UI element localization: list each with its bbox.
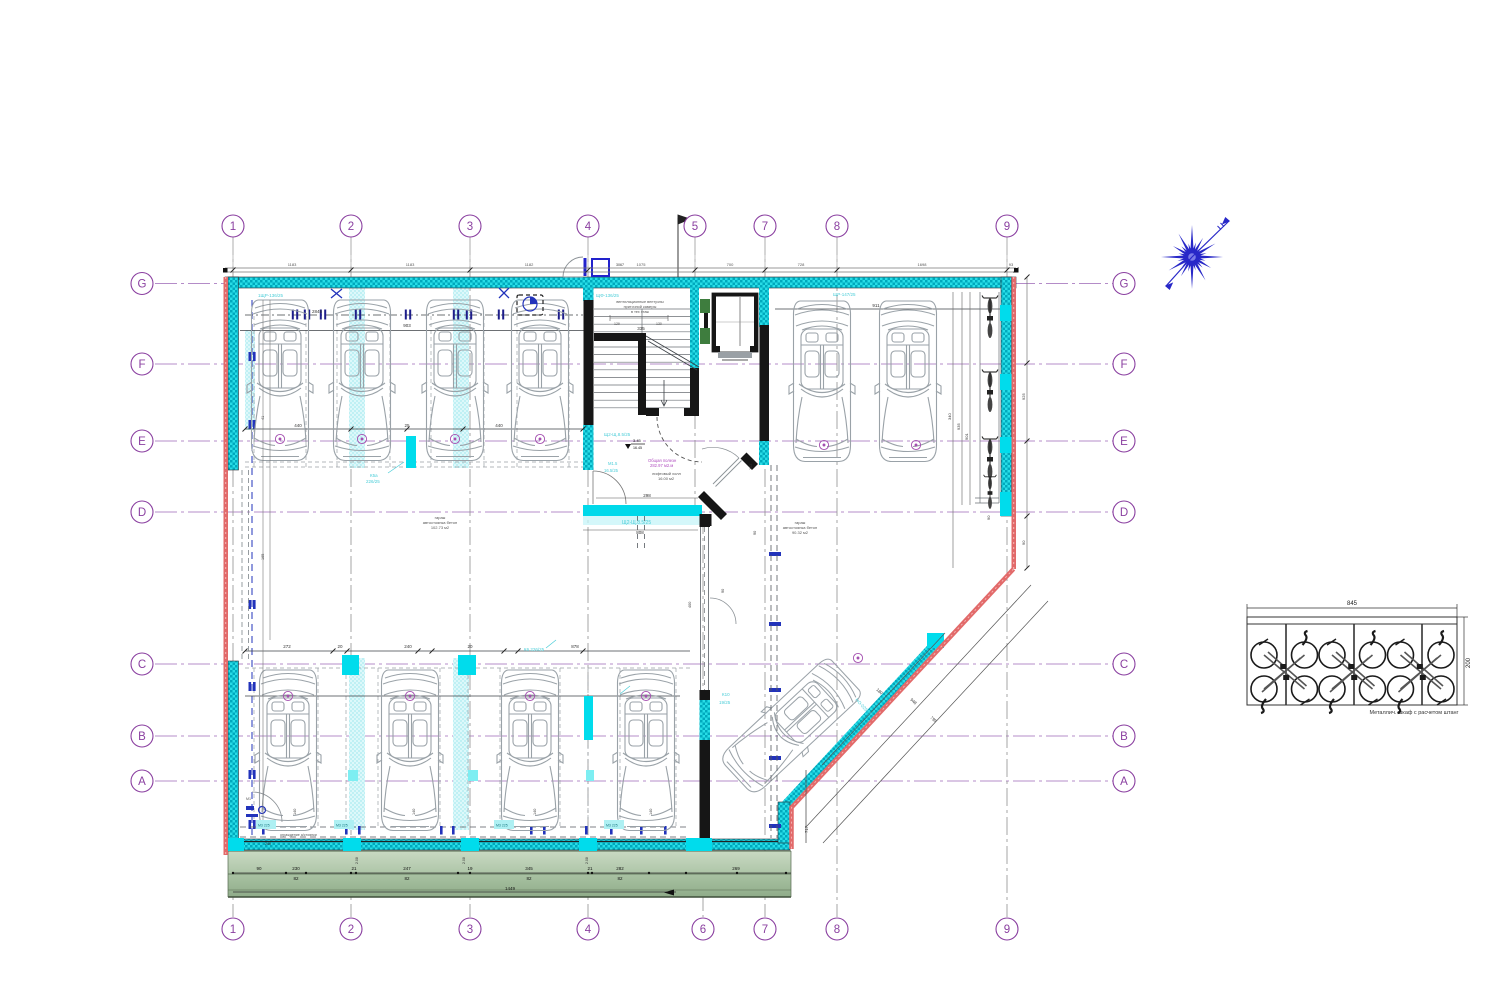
svg-text:B: B	[138, 731, 146, 743]
svg-text:М1: М1	[246, 797, 251, 801]
svg-text:1698: 1698	[918, 262, 928, 267]
svg-text:230: 230	[292, 866, 300, 871]
svg-text:935: 935	[956, 423, 961, 430]
svg-text:4: 4	[585, 221, 592, 233]
svg-text:G: G	[1120, 279, 1129, 291]
svg-text:808: 808	[636, 530, 644, 535]
svg-text:903: 903	[403, 323, 411, 328]
svg-text:298: 298	[643, 493, 651, 498]
svg-text:М1.5: М1.5	[608, 461, 618, 466]
svg-text:102: 102	[749, 464, 753, 470]
svg-text:82: 82	[404, 876, 410, 881]
svg-text:90: 90	[256, 866, 262, 871]
svg-text:вентиляционные вентузлы: вентиляционные вентузлы	[616, 300, 664, 304]
svg-text:345: 345	[525, 866, 533, 871]
svg-text:1ЩР-136/25: 1ЩР-136/25	[258, 293, 283, 298]
svg-text:E: E	[1120, 436, 1128, 448]
svg-text:2.08: 2.08	[585, 857, 589, 864]
svg-text:К10: К10	[722, 692, 730, 697]
svg-text:Щ2-Щ.8.5/25: Щ2-Щ.8.5/25	[604, 432, 631, 437]
svg-text:приточной камеры: приточной камеры	[624, 305, 657, 309]
svg-text:6: 6	[700, 924, 706, 936]
svg-text:М3 225: М3 225	[606, 824, 618, 828]
svg-text:М3 225: М3 225	[496, 824, 508, 828]
svg-text:D: D	[1120, 507, 1128, 519]
svg-text:F: F	[138, 359, 145, 371]
svg-text:102.73 м2: 102.73 м2	[431, 525, 450, 530]
svg-text:М3 225: М3 225	[336, 824, 348, 828]
svg-text:3: 3	[467, 924, 473, 936]
svg-text:90.32 м2: 90.32 м2	[792, 530, 809, 535]
svg-text:400: 400	[688, 602, 692, 608]
svg-text:1: 1	[230, 221, 236, 233]
svg-text:5: 5	[692, 221, 698, 233]
svg-text:129: 129	[614, 322, 620, 326]
svg-text:440: 440	[294, 423, 302, 428]
svg-text:Щ2-Щ.8.5/25: Щ2-Щ.8.5/25	[622, 520, 651, 526]
svg-text:3.45: 3.45	[633, 438, 642, 443]
svg-text:2845: 2845	[312, 309, 323, 314]
svg-text:282.97 м2.м: 282.97 м2.м	[650, 463, 673, 468]
svg-text:925: 925	[1021, 393, 1026, 400]
svg-text:249: 249	[265, 842, 271, 846]
svg-text:D: D	[138, 507, 146, 519]
svg-text:9: 9	[1004, 221, 1010, 233]
svg-text:E: E	[138, 436, 146, 448]
svg-text:140: 140	[533, 809, 537, 815]
svg-text:140: 140	[412, 809, 416, 815]
svg-text:240: 240	[404, 644, 412, 649]
svg-text:878: 878	[571, 644, 579, 649]
svg-text:A: A	[1120, 776, 1128, 788]
svg-text:М3 225: М3 225	[258, 824, 270, 828]
svg-text:8: 8	[834, 221, 840, 233]
svg-text:7: 7	[762, 221, 768, 233]
svg-text:9: 9	[1004, 924, 1010, 936]
svg-text:16.45: 16.45	[633, 446, 642, 450]
svg-text:1075: 1075	[637, 262, 647, 267]
svg-text:4: 4	[585, 924, 592, 936]
svg-text:19: 19	[467, 866, 473, 871]
svg-text:911: 911	[872, 303, 880, 308]
svg-text:845: 845	[1347, 601, 1358, 607]
svg-text:90: 90	[1021, 540, 1026, 545]
svg-text:2.08: 2.08	[462, 857, 466, 864]
svg-text:130: 130	[656, 322, 662, 326]
svg-text:20: 20	[467, 644, 473, 649]
svg-text:3067: 3067	[616, 263, 624, 267]
svg-text:93: 93	[1009, 262, 1014, 267]
svg-text:ЩР-147/25: ЩР-147/25	[833, 292, 856, 297]
svg-text:ЩФ-136/25: ЩФ-136/25	[596, 293, 619, 298]
svg-text:1182: 1182	[525, 262, 534, 267]
svg-text:82: 82	[617, 876, 623, 881]
svg-text:1183: 1183	[288, 262, 297, 267]
svg-text:2: 2	[348, 924, 354, 936]
svg-text:C: C	[1120, 659, 1128, 671]
svg-text:3: 3	[467, 221, 473, 233]
svg-text:21: 21	[587, 866, 593, 871]
svg-text:19/25: 19/25	[719, 700, 731, 705]
svg-text:717: 717	[804, 825, 809, 833]
svg-text:269: 269	[732, 866, 740, 871]
svg-text:440: 440	[495, 423, 503, 428]
svg-text:226/25: 226/25	[366, 479, 380, 484]
svg-text:200: 200	[1466, 657, 1472, 668]
svg-text:7: 7	[762, 924, 768, 936]
svg-text:C: C	[138, 659, 146, 671]
svg-text:G: G	[138, 279, 147, 291]
svg-text:728: 728	[798, 262, 805, 267]
svg-text:21: 21	[351, 866, 357, 871]
svg-text:2.08: 2.08	[355, 857, 359, 864]
svg-text:282: 282	[616, 866, 624, 871]
svg-text:F: F	[1120, 359, 1127, 371]
svg-text:90: 90	[986, 515, 991, 520]
svg-text:20: 20	[337, 644, 343, 649]
svg-text:К6 226/25: К6 226/25	[524, 647, 545, 652]
svg-text:ограждение а/стоянки: ограждение а/стоянки	[280, 833, 317, 837]
svg-text:1183: 1183	[406, 262, 415, 267]
svg-text:К5а: К5а	[370, 473, 378, 478]
svg-text:16.5/25: 16.5/25	[604, 468, 619, 473]
svg-text:247: 247	[403, 866, 411, 871]
svg-text:700: 700	[727, 262, 734, 267]
svg-text:A: A	[138, 776, 146, 788]
svg-text:901: 901	[964, 433, 969, 440]
svg-text:340: 340	[947, 413, 952, 420]
svg-text:16.00 м2: 16.00 м2	[658, 476, 675, 481]
svg-text:B: B	[1120, 731, 1128, 743]
svg-text:90: 90	[721, 589, 725, 593]
svg-text:272: 272	[283, 644, 291, 649]
svg-text:2: 2	[348, 221, 354, 233]
svg-text:90: 90	[753, 531, 757, 535]
svg-text:335: 335	[637, 326, 645, 331]
svg-text:140: 140	[649, 809, 653, 815]
svg-text:Металлич. шкаф с расчетом штан: Металлич. шкаф с расчетом штанг	[1369, 710, 1458, 716]
svg-text:82: 82	[293, 876, 299, 881]
svg-text:1449: 1449	[505, 886, 516, 891]
svg-text:1: 1	[230, 924, 236, 936]
svg-text:82: 82	[526, 876, 532, 881]
svg-text:в тех этаж: в тех этаж	[631, 310, 649, 314]
svg-text:8: 8	[834, 924, 840, 936]
svg-text:140: 140	[293, 809, 297, 815]
